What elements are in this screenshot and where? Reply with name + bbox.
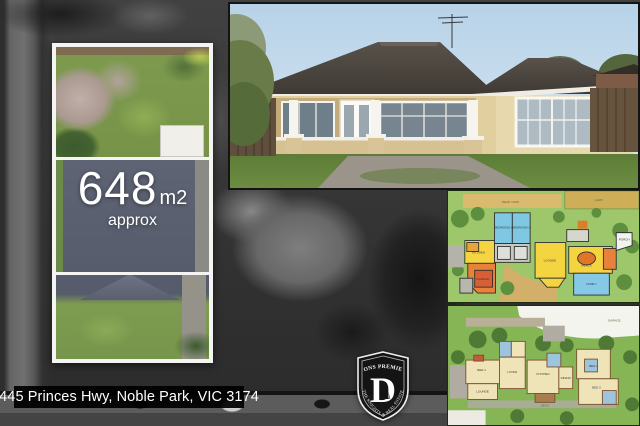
land-area-unit: m2: [159, 187, 187, 209]
svg-text:DINING: DINING: [561, 376, 572, 380]
side-pad: [448, 246, 464, 268]
land-area-value: 648: [78, 162, 158, 214]
footpath: [448, 410, 486, 425]
svg-text:LIVING: LIVING: [507, 370, 517, 374]
street-band: [466, 318, 545, 327]
listing-collage: 648m2 approx 445 Princes Hwy, Noble Park…: [0, 0, 640, 426]
svg-text:LOUNGE: LOUNGE: [544, 258, 557, 262]
svg-text:MEALS: MEALS: [582, 263, 592, 267]
svg-text:KITCHEN: KITCHEN: [472, 250, 485, 254]
aerial-lot-photo: 648m2 approx: [52, 43, 213, 363]
svg-text:PORCH: PORCH: [619, 238, 630, 242]
svg-text:BEDROOM 3: BEDROOM 3: [512, 226, 530, 230]
lawn-shadow: [360, 168, 480, 184]
address-bar: 445 Princes Hwy, Noble Park, VIC 3174: [14, 386, 244, 408]
svg-text:DECK: DECK: [541, 403, 549, 407]
floorplan-site: BEDROOM 2 BEDROOM 3 LOUNGE GARAGE KITCHE…: [447, 190, 640, 303]
right-wing-window: [516, 98, 592, 146]
aerial-lot-inner: 648m2 approx: [56, 47, 209, 359]
shield-crest-icon: DONS PREMIER D ♞ THE KNIGHTS OF REAL EST…: [352, 349, 414, 423]
floorplan-site-drawing: BEDROOM 2 BEDROOM 3 LOUNGE GARAGE KITCHE…: [448, 191, 639, 302]
floorplan-units-drawing: BED 1 LIVING KITCHEN DINING BED 2 BED 3 …: [448, 306, 639, 425]
svg-text:GARAGE: GARAGE: [608, 319, 621, 323]
knight-icon: ♞: [377, 384, 392, 403]
shed-marker: [578, 221, 588, 229]
svg-text:KITCHEN: KITCHEN: [537, 372, 550, 376]
lot-boundary-line-lower: [56, 272, 209, 275]
svg-text:BED 3: BED 3: [592, 386, 601, 390]
svg-text:BED 1: BED 1: [477, 368, 486, 372]
svg-text:FAMILY: FAMILY: [586, 282, 596, 286]
svg-text:BEDROOM 2: BEDROOM 2: [495, 226, 513, 230]
svg-text:REAR YARD: REAR YARD: [502, 200, 519, 204]
house-front-illustration: [230, 4, 638, 188]
floorplan-units: BED 1 LIVING KITCHEN DINING BED 2 BED 3 …: [447, 305, 640, 426]
right-fence: [590, 64, 638, 152]
lot-boundary-line-upper: [56, 157, 209, 160]
shed-roof: [160, 125, 204, 157]
svg-text:BED 2: BED 2: [589, 364, 598, 368]
house-front-photo: [228, 2, 640, 190]
svg-text:LAWN: LAWN: [594, 198, 602, 202]
land-area-label: 648m2 approx: [56, 165, 209, 230]
agency-logo: DONS PREMIER D ♞ THE KNIGHTS OF REAL EST…: [352, 349, 414, 423]
svg-text:GARAGE: GARAGE: [476, 277, 489, 281]
svg-text:LOUNGE: LOUNGE: [476, 390, 488, 394]
